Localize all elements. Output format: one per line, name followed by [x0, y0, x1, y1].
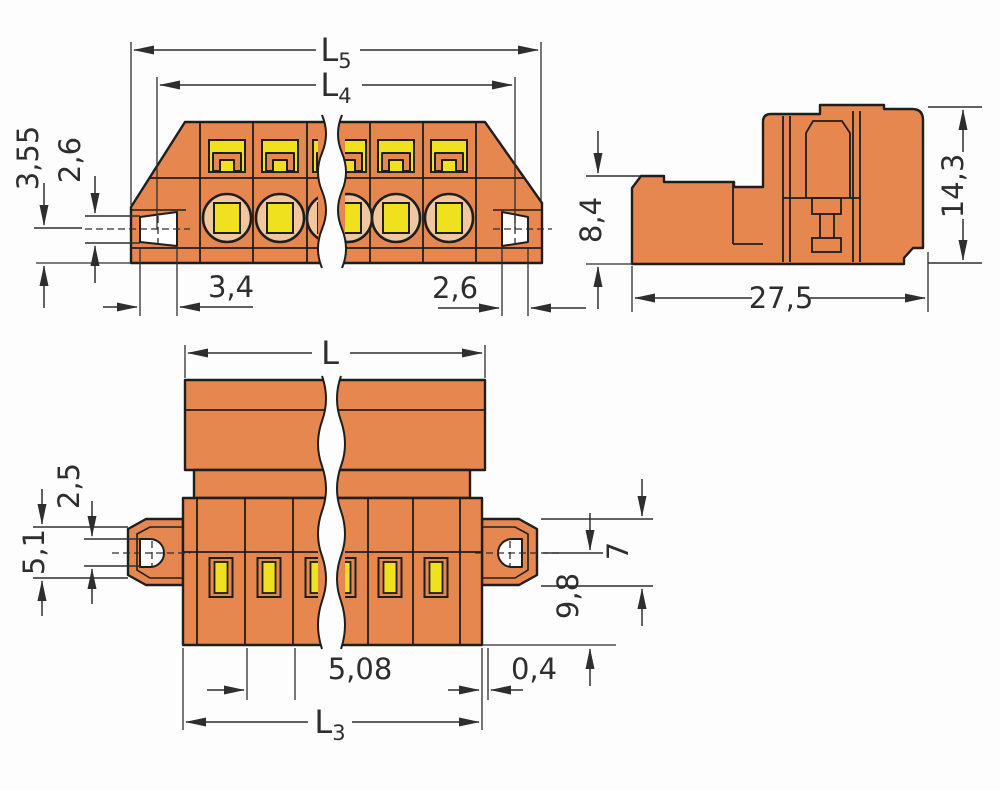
connector-drawing: L5 L4 3,55 2,6 [0, 0, 1000, 790]
dim-label-3_55: 3,55 [11, 126, 45, 191]
technical-drawing-canvas: L5 L4 3,55 2,6 [0, 0, 1000, 790]
dim-label-2_6-left: 2,6 [53, 137, 87, 183]
slot [210, 558, 233, 597]
dim-label-8_4: 8,4 [574, 197, 608, 243]
dim-l: L [185, 334, 485, 378]
dim-label-5_1: 5,1 [17, 529, 51, 575]
dim-label-14_3: 14,3 [936, 154, 970, 219]
front-view: L5 L4 3,55 2,6 [11, 31, 586, 316]
dim-2_5: 2,5 [52, 463, 139, 604]
dim-label-2_5: 2,5 [52, 463, 86, 509]
dim-label-0_4: 0,4 [511, 652, 557, 686]
side-body [632, 105, 923, 264]
dim-8_4: 8,4 [574, 131, 640, 309]
dim-label-3_4: 3,4 [208, 270, 254, 304]
dim-label-9_8: 9,8 [551, 573, 585, 619]
dim-label-5_08: 5,08 [328, 652, 393, 686]
side-view: 8,4 14,3 27,5 [574, 105, 982, 315]
dim-label-2_6-right: 2,6 [432, 271, 478, 305]
dim-14_3: 14,3 [928, 107, 982, 263]
bottom-view: L 2,5 5,1 7 [17, 334, 653, 745]
dim-2_6-left: 2,6 [53, 137, 140, 283]
dim-label-l3: L3 [314, 703, 345, 745]
slot [379, 558, 402, 597]
dim-label-7: 7 [601, 542, 635, 560]
dim-label-27_5: 27,5 [749, 281, 814, 315]
slot [425, 558, 448, 597]
dim-0_4: 0,4 [448, 648, 557, 730]
slot [258, 558, 281, 597]
dim-label-l: L [321, 334, 339, 372]
dim-5_08: 5,08 [207, 648, 392, 700]
